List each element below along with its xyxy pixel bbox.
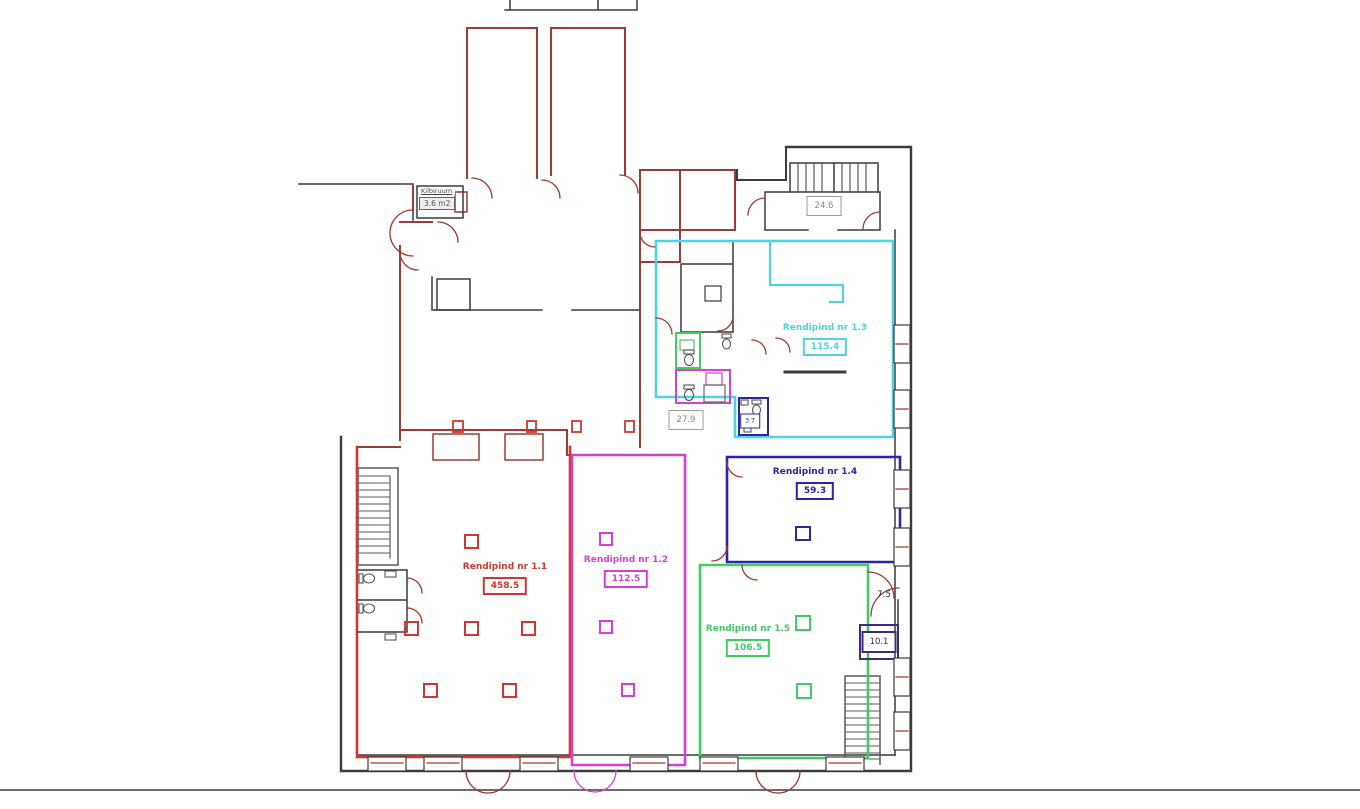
door-arcs <box>390 175 899 793</box>
red-walls <box>357 28 735 460</box>
floorplan-canvas: Rendipind nr 1.1 458.5 Rendipind nr 1.2 … <box>0 0 1360 809</box>
kilbiruum-room <box>417 186 463 218</box>
door-arcs-magenta <box>574 771 616 792</box>
windows-right <box>894 325 910 750</box>
room-1-3-outline <box>656 241 893 437</box>
stairs-top-right <box>790 163 878 192</box>
stairs-bottom-right <box>845 676 880 764</box>
room-1-5-outline <box>700 565 868 758</box>
room-1-4-outline <box>727 457 900 562</box>
stairs-left <box>358 468 398 565</box>
wc-core-rooms <box>676 333 898 659</box>
room-1-2-outline <box>572 455 685 765</box>
secondary-walls <box>0 0 1360 790</box>
floorplan-drawing <box>0 0 1360 809</box>
